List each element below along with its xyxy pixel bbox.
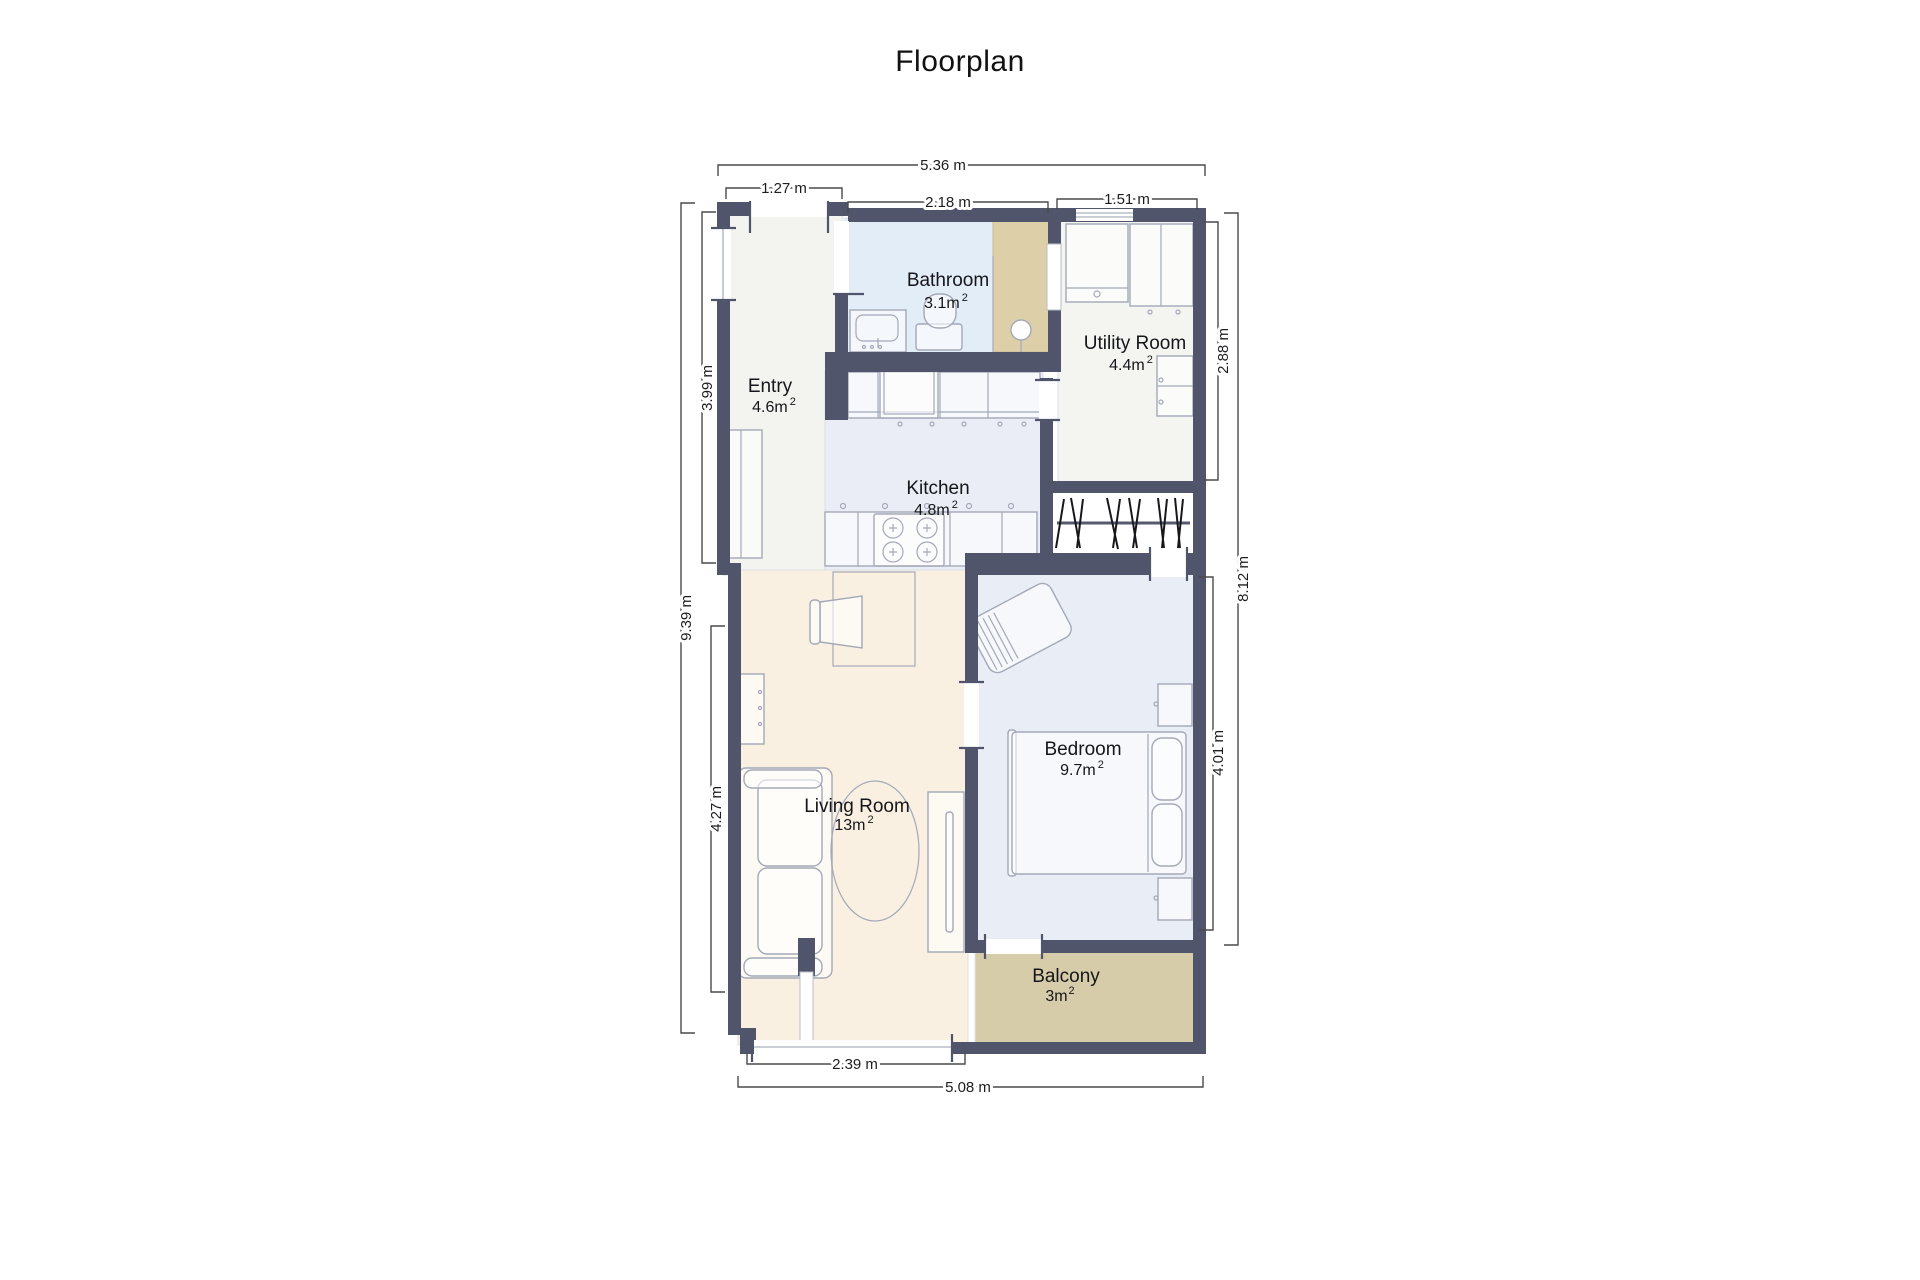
utility-pocket-door <box>1047 244 1061 310</box>
nightstand-top <box>1154 684 1192 726</box>
dim-bedroom-right: 4.01 m <box>1210 730 1227 776</box>
wall-top <box>848 208 1206 222</box>
utility-label: Utility Room <box>1084 333 1186 354</box>
bedroom-door-opening <box>964 682 979 748</box>
utility-cabinet-side <box>1157 356 1193 416</box>
kitchen-counter-top <box>848 366 1040 426</box>
wall-bedroom-west <box>965 553 978 953</box>
wall-right <box>1193 208 1206 1054</box>
wall-kitchen-stub <box>825 372 848 420</box>
tv <box>946 812 953 932</box>
bathroom-sink <box>850 310 906 352</box>
patio-door <box>800 972 813 1042</box>
wardrobe-door-opening <box>1150 551 1187 577</box>
washer <box>1066 224 1128 302</box>
nightstand-bottom <box>1154 878 1192 920</box>
living-label: Living Room <box>804 796 910 817</box>
bathroom-door-opening <box>834 221 849 295</box>
dim-bathroom-top: 2.18 m <box>925 194 971 211</box>
balcony-door-opening <box>985 939 1042 954</box>
wall-balcony-stub <box>798 938 815 976</box>
dim-bottom-total: 5.08 m <box>945 1079 991 1096</box>
balcony-label: Balcony <box>1032 966 1100 987</box>
kitchen-label: Kitchen <box>906 478 969 499</box>
floorplan-page: Floorplan <box>0 0 1920 1280</box>
dim-right-total: 8.12 m <box>1235 556 1252 602</box>
balcony-floor <box>975 945 1195 1045</box>
entry-door-opening <box>750 201 828 217</box>
wall-wardrobe-left <box>1040 493 1053 555</box>
tv-console <box>928 792 964 952</box>
dim-utility-right: 2.88 m <box>1215 328 1232 374</box>
dim-living-bottom: 2.39 m <box>832 1056 878 1073</box>
dim-entry-door: 1.27 m <box>761 180 807 197</box>
bedroom-label: Bedroom <box>1044 739 1121 760</box>
wall-left-lower <box>728 563 741 1035</box>
dim-top-total: 5.36 m <box>920 157 966 174</box>
dim-left-total: 9.39 m <box>678 595 695 641</box>
utility-door-opening <box>1039 380 1054 420</box>
pillow <box>1152 804 1182 866</box>
floorplan-canvas: 5.36 m 1.27 m 2.18 m 1.51 m 9.39 m 3.99 … <box>0 0 1920 1280</box>
utility-cabinet-top <box>1130 224 1193 314</box>
pillow <box>1152 738 1182 800</box>
entry-label: Entry <box>748 376 793 397</box>
wall-utility-bottom <box>1040 481 1206 493</box>
dim-living-left: 4.27 m <box>708 786 725 832</box>
dim-entry-left: 3.99 m <box>699 365 716 411</box>
wall-bathroom-bottom <box>825 352 1061 372</box>
bathroom-label: Bathroom <box>907 270 989 291</box>
utility-window <box>1076 209 1133 221</box>
dim-utility-top: 1.51 m <box>1104 191 1150 208</box>
entry-closet <box>729 430 762 558</box>
